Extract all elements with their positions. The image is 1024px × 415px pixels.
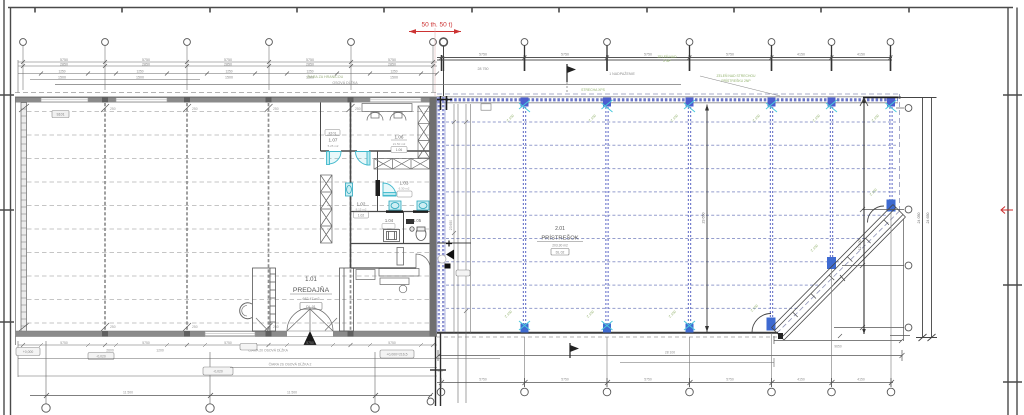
svg-text:5750: 5750 [60,341,68,345]
svg-text:Z 150: Z 150 [752,114,761,123]
svg-text:1250: 1250 [306,69,313,73]
svg-text:-0,020: -0,020 [213,370,223,374]
svg-text:5750: 5750 [142,58,150,62]
svg-text:ČIARA ZA HRANICOU: ČIARA ZA HRANICOU [307,74,344,79]
svg-text:5750: 5750 [60,58,68,62]
svg-text:5750: 5750 [306,341,314,345]
svg-text:9650: 9650 [834,345,842,349]
svg-text:4150: 4150 [797,378,805,382]
svg-text:23 650: 23 650 [702,213,706,224]
svg-text:28 100: 28 100 [665,351,675,355]
svg-text:5750: 5750 [644,53,652,57]
svg-text:1250: 1250 [225,69,232,73]
svg-text:1500: 1500 [225,75,233,79]
svg-text:1.05: 1.05 [413,218,422,223]
svg-text:5750: 5750 [726,378,734,382]
svg-text:50 th. 50 t): 50 th. 50 t) [421,22,452,29]
svg-text:DL 02: DL 02 [556,251,565,255]
svg-text:1250: 1250 [58,69,65,73]
svg-text:4150: 4150 [857,53,865,57]
svg-text:4150: 4150 [857,378,865,382]
svg-text:250: 250 [110,107,116,111]
svg-text:1.07: 1.07 [329,138,338,143]
svg-text:1.03: 1.03 [400,181,409,186]
svg-text:2850: 2850 [388,62,396,66]
svg-text:250: 250 [355,107,361,111]
svg-text:2.01: 2.01 [555,226,565,232]
svg-text:+0,000=216,5: +0,000=216,5 [387,353,408,357]
svg-text:250: 250 [192,325,198,329]
svg-text:1.06: 1.06 [395,135,404,140]
svg-text:23 650: 23 650 [449,220,453,230]
svg-text:24 050: 24 050 [917,213,921,224]
svg-text:Z 150: Z 150 [668,310,677,319]
svg-text:Z 150: Z 150 [869,188,878,197]
svg-text:Z 150: Z 150 [810,244,819,253]
svg-text:S101: S101 [57,113,65,117]
svg-text:PRÍSTREŠKU 2NP: PRÍSTREŠKU 2NP [721,78,751,83]
svg-text:5750: 5750 [479,53,487,57]
svg-text:11 500: 11 500 [123,391,133,395]
svg-text:5.25 m2: 5.25 m2 [328,144,339,148]
svg-text:Z 150: Z 150 [506,114,515,123]
svg-text:5750: 5750 [561,53,569,57]
svg-text:12 400: 12 400 [858,240,862,251]
svg-text:1250: 1250 [136,69,143,73]
svg-text:Z 150: Z 150 [750,304,759,313]
svg-text:STRECHA XPS: STRECHA XPS [581,88,605,92]
svg-text:Z 150: Z 150 [586,310,595,319]
svg-text:5750: 5750 [224,58,232,62]
svg-text:5750: 5750 [388,58,396,62]
svg-text:1500: 1500 [136,75,144,79]
svg-text:5750: 5750 [306,58,314,62]
svg-text:1500: 1500 [390,75,398,79]
svg-text:1.04: 1.04 [385,218,394,223]
svg-text:5750: 5750 [726,53,734,57]
svg-text:ČIARA 2S OSOVÁ DĹŽKA 2: ČIARA 2S OSOVÁ DĹŽKA 2 [269,362,312,367]
svg-text:PRÍSTREŠOK: PRÍSTREŠOK [541,235,578,242]
svg-text:5750: 5750 [388,341,396,345]
svg-text:21.50 m2: 21.50 m2 [393,142,406,146]
svg-text:5750: 5750 [644,378,652,382]
svg-text:PREDAJŇA: PREDAJŇA [293,285,330,294]
svg-text:Z 150: Z 150 [504,310,513,319]
svg-text:24 650: 24 650 [926,213,930,224]
svg-text:2 NP: 2 NP [663,59,671,63]
svg-text:4150: 4150 [797,53,805,57]
svg-text:-0,020: -0,020 [96,355,106,359]
svg-text:Z 150: Z 150 [812,114,821,123]
svg-text:1 NADPAŽENIE: 1 NADPAŽENIE [609,71,635,76]
svg-text:6.30 m2: 6.30 m2 [399,187,410,191]
svg-text:1.01: 1.01 [305,277,317,283]
svg-text:1.02: 1.02 [357,202,366,207]
svg-text:2850: 2850 [224,62,232,66]
svg-text:250: 250 [273,107,279,111]
svg-text:8.15 m2: 8.15 m2 [356,208,367,212]
svg-text:K101: K101 [329,131,337,135]
svg-text:1.06: 1.06 [396,148,403,152]
svg-text:5750: 5750 [142,341,150,345]
svg-text:Z 150: Z 150 [871,114,880,123]
svg-text:1.02: 1.02 [358,214,365,218]
svg-text:682.47 m2: 682.47 m2 [303,297,320,301]
svg-text:5750: 5750 [561,378,569,382]
svg-text:5750: 5750 [224,341,232,345]
svg-text:Z 150: Z 150 [670,114,679,123]
svg-text:1250: 1250 [390,69,397,73]
svg-text:1200: 1200 [156,349,164,353]
svg-text:OSOVÁ DĹŽKA: OSOVÁ DĹŽKA [332,80,358,85]
svg-text:2850: 2850 [306,62,314,66]
svg-text:250: 250 [192,107,198,111]
svg-text:2850: 2850 [142,62,150,66]
svg-text:2600: 2600 [106,349,114,353]
svg-text:Z 150: Z 150 [588,114,597,123]
svg-text:1500: 1500 [58,75,66,79]
svg-text:203.30 m2: 203.30 m2 [552,244,568,248]
svg-text:2850: 2850 [60,62,68,66]
svg-text:28 750: 28 750 [478,67,489,71]
svg-text:ZELEŇ NAD STRECHOU: ZELEŇ NAD STRECHOU [717,74,757,78]
svg-text:5750: 5750 [479,378,487,382]
svg-text:11 500: 11 500 [287,391,297,395]
svg-text:250: 250 [110,325,116,329]
svg-text:+0,000: +0,000 [23,350,34,354]
